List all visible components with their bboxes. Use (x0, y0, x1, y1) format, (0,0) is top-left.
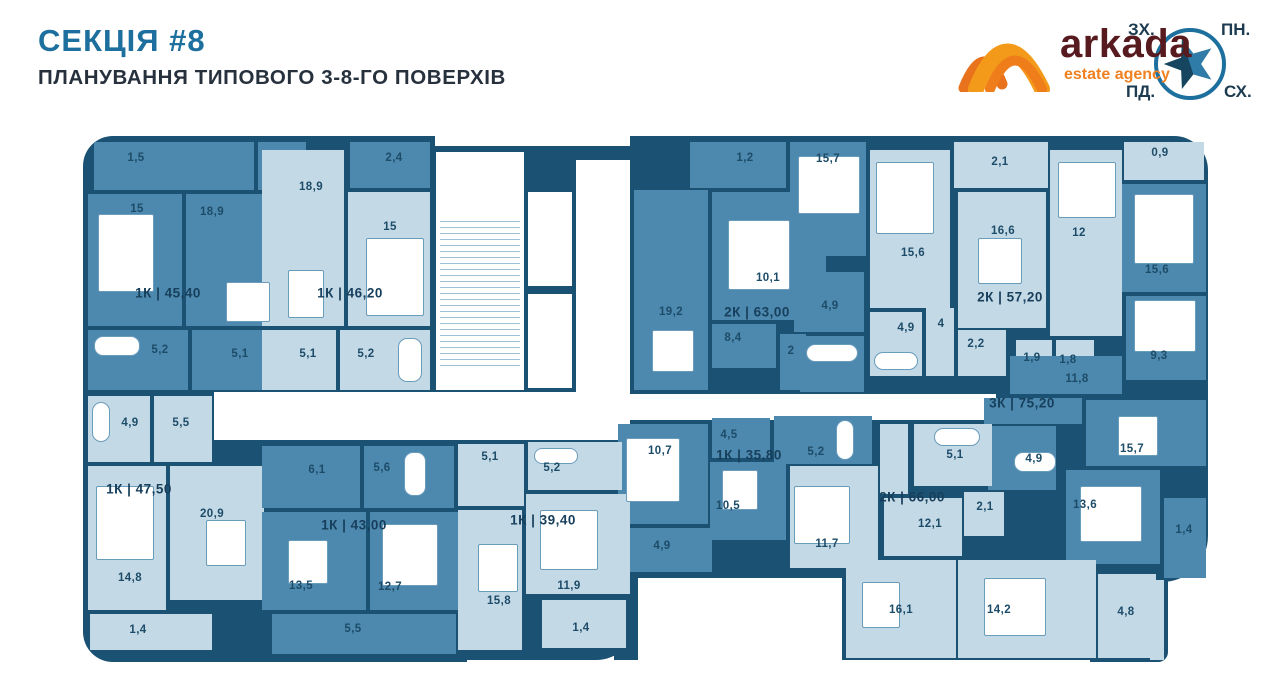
room-area-label: 5,2 (543, 462, 560, 474)
corridor (214, 392, 630, 440)
room-area-label: 1,2 (736, 152, 753, 164)
room-area-label: 4,5 (720, 429, 737, 441)
tub-icon (806, 344, 858, 362)
room-area-label: 14,8 (118, 572, 142, 584)
room (350, 142, 430, 188)
apartment-label: 2К | 63,00 (724, 305, 790, 320)
bed-icon (1080, 486, 1142, 542)
room-area-label: 16,1 (889, 604, 913, 616)
room-area-label: 12,1 (918, 518, 942, 530)
room-area-label: 1,8 (1059, 354, 1076, 366)
room-area-label: 12 (1072, 227, 1086, 239)
table-icon (978, 238, 1022, 284)
room (154, 396, 212, 462)
bed-icon (382, 524, 438, 586)
bed-icon (794, 486, 850, 544)
room-area-label: 5,2 (151, 344, 168, 356)
room-area-label: 5,1 (231, 348, 248, 360)
room-area-label: 2,4 (385, 152, 402, 164)
room-area-label: 11,7 (815, 538, 838, 550)
room-area-label: 5,1 (299, 348, 316, 360)
room-area-label: 5,1 (946, 449, 963, 461)
room-area-label: 13,6 (1073, 499, 1097, 511)
room-area-label: 14,2 (987, 604, 1011, 616)
room (964, 492, 1004, 536)
room-area-label: 10,5 (716, 500, 740, 512)
room (880, 424, 908, 494)
room-area-label: 2,2 (967, 338, 984, 350)
room-area-label: 12,7 (378, 581, 402, 593)
bed-icon (1134, 300, 1196, 352)
tub-icon (92, 402, 110, 442)
room (958, 330, 1006, 376)
room-area-label: 2,1 (976, 501, 993, 513)
table-icon (226, 282, 270, 322)
room-area-label: 10,7 (648, 445, 672, 457)
floor-plan: 1,51518,95,25,118,92,4155,15,21,215,710,… (0, 0, 1280, 686)
room (262, 446, 360, 508)
tub-icon (836, 420, 854, 460)
room-area-label: 15,6 (901, 247, 925, 259)
bed-icon (366, 238, 424, 316)
room (94, 142, 254, 190)
room-area-label: 4,9 (1025, 453, 1042, 465)
room-area-label: 2,1 (991, 156, 1008, 168)
floor-plan-page: СЕКЦІЯ #8 ПЛАНУВАННЯ ТИПОВОГО 3-8-ГО ПОВ… (0, 0, 1280, 686)
room-area-label: 1,4 (1175, 524, 1192, 536)
bed-icon (876, 162, 934, 234)
bed-icon (98, 214, 154, 292)
room-area-label: 4,9 (121, 417, 138, 429)
room-area-label: 10,1 (756, 272, 780, 284)
room (690, 142, 786, 188)
compass-east-label: СХ. (1224, 82, 1252, 102)
tub-icon (398, 338, 422, 382)
elevator-shaft (528, 294, 572, 388)
room-area-label: 9,3 (1150, 350, 1167, 362)
apartment-label: 1К | 47,50 (106, 482, 172, 497)
room-area-label: 5,2 (357, 348, 374, 360)
stairs-icon (440, 216, 520, 366)
courtyard-cutout (638, 578, 842, 686)
room-area-label: 15,7 (1120, 443, 1144, 455)
room (90, 614, 212, 650)
table-icon (288, 540, 328, 584)
apartment-label: 1К | 43,00 (321, 518, 387, 533)
bed-icon (1134, 194, 1194, 264)
compass-north-label: ПН. (1221, 20, 1250, 40)
room-area-label: 5,2 (807, 446, 824, 458)
apartment-label: 1К | 39,40 (510, 513, 576, 528)
tub-icon (404, 452, 426, 496)
room-area-label: 5,6 (373, 462, 390, 474)
brand-tagline: estate agency (1064, 66, 1170, 84)
room-area-label: 15 (383, 221, 397, 233)
tub-icon (934, 428, 980, 446)
room-area-label: 20,9 (200, 508, 224, 520)
room-area-label: 4,9 (897, 322, 914, 334)
room-area-label: 5,1 (481, 451, 498, 463)
room (1150, 580, 1164, 660)
room-area-label: 15 (130, 203, 144, 215)
room-area-label: 0,9 (1151, 147, 1168, 159)
bed-icon (1058, 162, 1116, 218)
table-icon (478, 544, 518, 592)
tub-icon (874, 352, 918, 370)
apartment-label: 1К | 35,80 (716, 448, 782, 463)
apartment-label: 1К | 45,40 (135, 286, 201, 301)
room-area-label: 4,8 (1117, 606, 1134, 618)
table-icon (652, 330, 694, 372)
room-area-label: 5,5 (172, 417, 189, 429)
room (780, 334, 806, 390)
room-area-label: 11,9 (557, 580, 580, 592)
room-area-label: 11,8 (1065, 373, 1088, 385)
room-area-label: 1,4 (572, 622, 589, 634)
apartment-label: 1К | 46,20 (317, 286, 383, 301)
room-area-label: 2 (788, 345, 795, 357)
room (1164, 498, 1206, 578)
room-area-label: 18,9 (200, 206, 224, 218)
room-area-label: 4,9 (653, 540, 670, 552)
room-area-label: 1,4 (129, 624, 146, 636)
apartment-label: 2К | 57,20 (977, 290, 1043, 305)
room-area-label: 4,9 (821, 300, 838, 312)
room (262, 330, 336, 390)
room-area-label: 1,5 (127, 152, 144, 164)
table-icon (206, 520, 246, 566)
room-area-label: 6,1 (308, 464, 325, 476)
apartment-label: 3К | 75,20 (989, 396, 1055, 411)
room-area-label: 16,6 (991, 225, 1015, 237)
room-area-label: 15,6 (1145, 264, 1169, 276)
room-area-label: 8,4 (724, 332, 741, 344)
room-area-label: 13,5 (289, 580, 313, 592)
room-area-label: 5,5 (344, 623, 361, 635)
elevator-shaft (528, 192, 572, 286)
room-area-label: 19,2 (659, 306, 683, 318)
bed-icon (96, 486, 154, 560)
tub-icon (94, 336, 140, 356)
room-area-label: 4 (938, 318, 945, 330)
room-area-label: 15,7 (816, 153, 840, 165)
brand-name: arkada (1060, 22, 1192, 67)
compass-south-label: ПД. (1126, 82, 1155, 102)
apartment-label: 2К | 66,00 (879, 490, 945, 505)
room (712, 324, 776, 368)
room-area-label: 1,9 (1023, 352, 1040, 364)
room (272, 614, 456, 654)
room-area-label: 15,8 (487, 595, 511, 607)
room-area-label: 18,9 (299, 181, 323, 193)
corridor (576, 160, 630, 392)
